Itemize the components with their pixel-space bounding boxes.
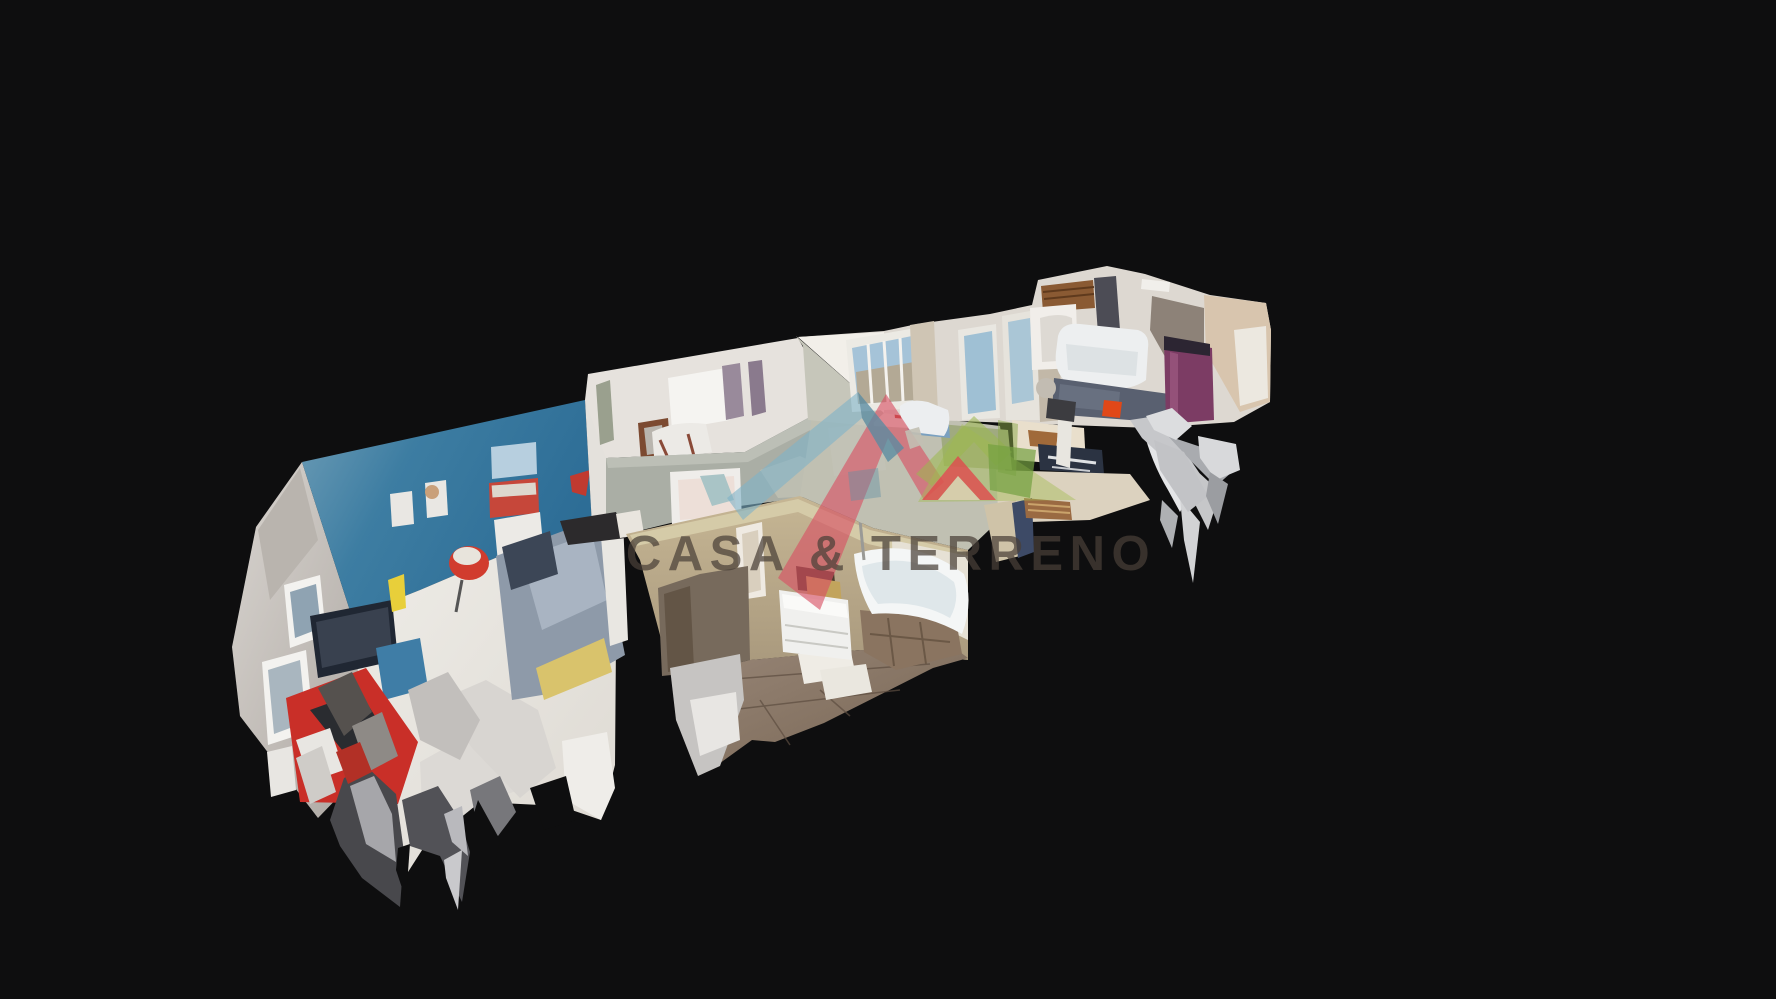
svg-text:CASA & TERRENO: CASA & TERRENO [626,527,1156,581]
